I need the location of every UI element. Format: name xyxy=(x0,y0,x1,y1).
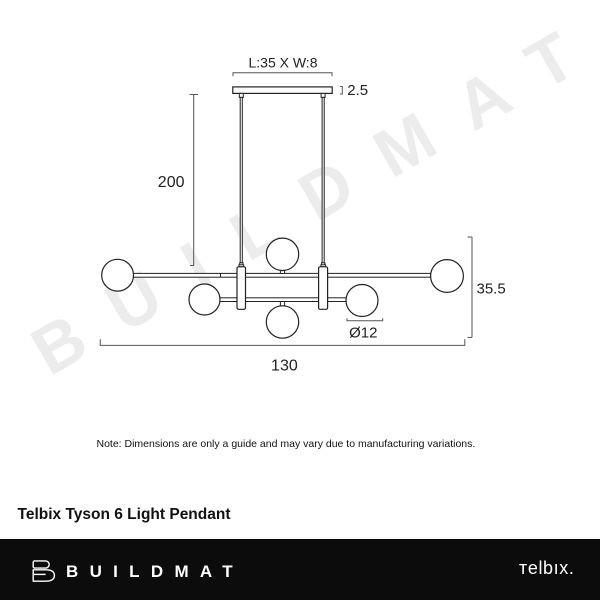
svg-text:130: 130 xyxy=(271,358,298,375)
svg-text:Ø12: Ø12 xyxy=(349,325,377,342)
svg-text:35.5: 35.5 xyxy=(477,281,506,298)
svg-text:L:35 X W:8: L:35 X W:8 xyxy=(248,55,317,71)
svg-text:2.5: 2.5 xyxy=(347,82,368,99)
svg-text:200: 200 xyxy=(158,174,185,191)
